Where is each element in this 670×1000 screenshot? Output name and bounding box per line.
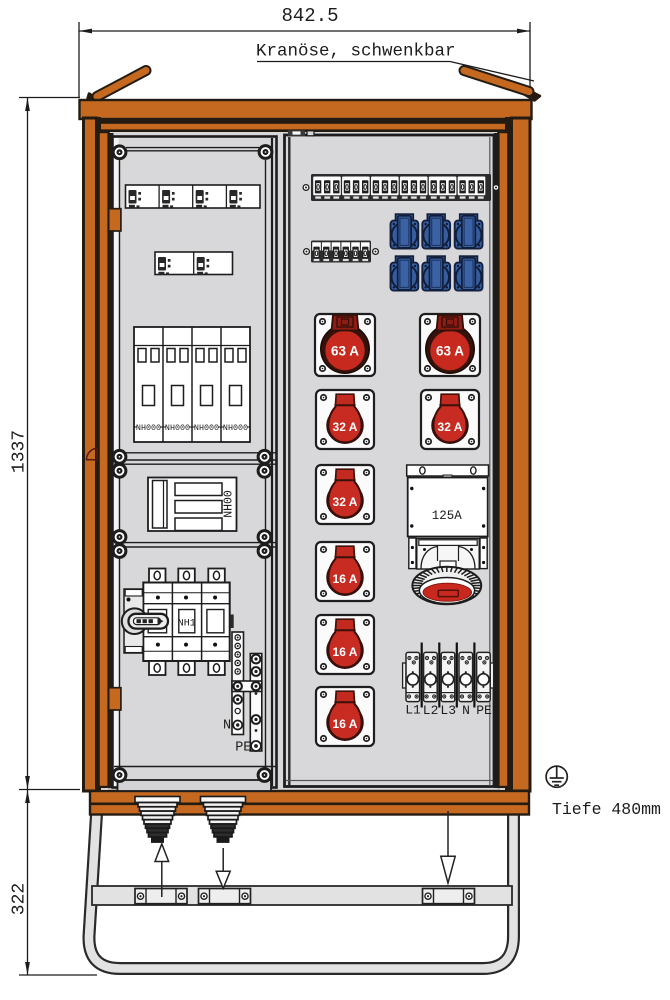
svg-text:NH000: NH000 bbox=[136, 423, 161, 433]
svg-text:N: N bbox=[223, 719, 231, 734]
svg-text:125A: 125A bbox=[432, 509, 463, 523]
svg-text:PE: PE bbox=[235, 741, 251, 756]
svg-text:842.5: 842.5 bbox=[281, 5, 338, 27]
svg-text:32 A: 32 A bbox=[333, 420, 358, 434]
svg-text:16 A: 16 A bbox=[333, 645, 358, 659]
svg-text:NH000: NH000 bbox=[165, 423, 190, 433]
svg-text:NH1: NH1 bbox=[178, 619, 196, 630]
svg-text:16 A: 16 A bbox=[333, 572, 358, 586]
svg-text:32 A: 32 A bbox=[333, 495, 358, 509]
svg-text:NH000: NH000 bbox=[223, 423, 248, 433]
svg-text:1337: 1337 bbox=[10, 430, 30, 473]
svg-text:16 A: 16 A bbox=[333, 717, 358, 731]
svg-text:63 A: 63 A bbox=[331, 344, 359, 359]
svg-text:NH000: NH000 bbox=[194, 423, 219, 433]
svg-text:PE: PE bbox=[476, 703, 492, 718]
svg-text:L3: L3 bbox=[440, 703, 456, 718]
svg-text:L2: L2 bbox=[423, 703, 439, 718]
svg-text:63 A: 63 A bbox=[436, 344, 464, 359]
svg-text:L1: L1 bbox=[405, 703, 421, 718]
svg-text:32 A: 32 A bbox=[438, 420, 463, 434]
svg-text:Tiefe 480mm: Tiefe 480mm bbox=[552, 800, 661, 819]
svg-text:N: N bbox=[462, 703, 470, 718]
svg-text:NH00: NH00 bbox=[223, 490, 236, 518]
svg-text:Kranöse, schwenkbar: Kranöse, schwenkbar bbox=[256, 42, 456, 62]
svg-text:322: 322 bbox=[10, 883, 30, 915]
